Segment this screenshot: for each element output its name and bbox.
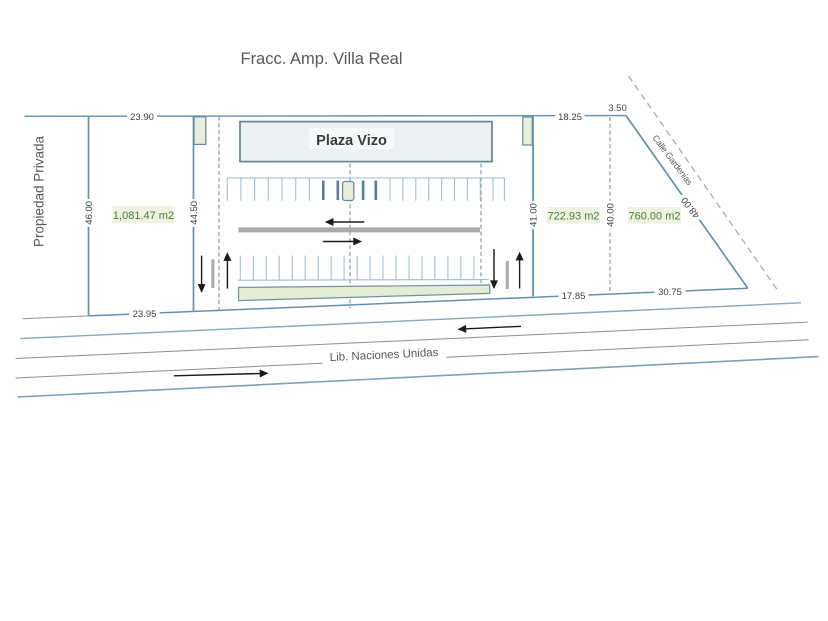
svg-text:Fracc. Amp. Villa Real: Fracc. Amp. Villa Real xyxy=(240,50,402,68)
svg-text:760.00 m2: 760.00 m2 xyxy=(629,211,681,223)
svg-text:23.95: 23.95 xyxy=(133,309,157,320)
svg-text:44.50: 44.50 xyxy=(189,201,200,225)
svg-text:23.90: 23.90 xyxy=(130,112,154,123)
svg-text:46.00: 46.00 xyxy=(84,201,95,225)
svg-text:722.93 m2: 722.93 m2 xyxy=(548,211,600,223)
svg-text:40.00: 40.00 xyxy=(606,203,617,227)
svg-text:Plaza Vizo: Plaza Vizo xyxy=(316,133,387,149)
svg-text:30.75: 30.75 xyxy=(658,287,682,298)
svg-text:18.25: 18.25 xyxy=(558,112,582,123)
svg-text:1,081.47 m2: 1,081.47 m2 xyxy=(113,210,174,222)
svg-text:17.85: 17.85 xyxy=(562,291,586,302)
svg-text:41.00: 41.00 xyxy=(529,203,540,227)
svg-text:3.50: 3.50 xyxy=(608,103,627,114)
svg-text:Propiedad Privada: Propiedad Privada xyxy=(32,135,47,247)
